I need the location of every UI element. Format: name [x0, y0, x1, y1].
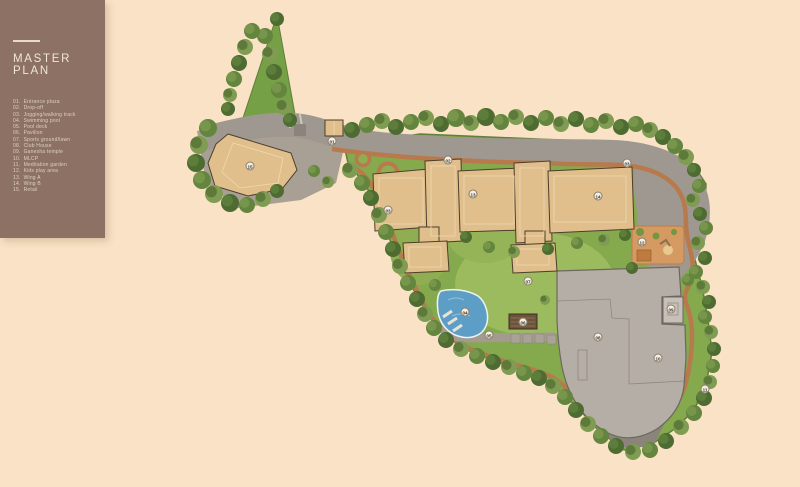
pavilion-structure	[509, 314, 537, 329]
page-title: MASTER PLAN	[13, 53, 105, 77]
ganesha-temple-structure	[663, 297, 683, 323]
track-ring-small	[357, 153, 370, 166]
kids-play-area-zone	[632, 226, 684, 264]
sidebar-rule	[13, 40, 40, 42]
legend-list: 01. Entrance plaza02. Drop-off03. Joggin…	[13, 99, 105, 193]
wing-b-block2	[548, 167, 634, 233]
site-map: 01020303040506070809101112131415	[0, 0, 800, 487]
wing-a-south	[403, 241, 449, 273]
wing-b-block1	[458, 168, 522, 232]
site-plan-graphic	[0, 0, 800, 487]
sidebar: MASTER PLAN 01. Entrance plaza02. Drop-o…	[0, 0, 105, 238]
master-plan-page: 01020303040506070809101112131415 MASTER …	[0, 0, 800, 487]
gate-pad	[294, 124, 306, 136]
legend-item: 15. Retail	[13, 187, 105, 193]
